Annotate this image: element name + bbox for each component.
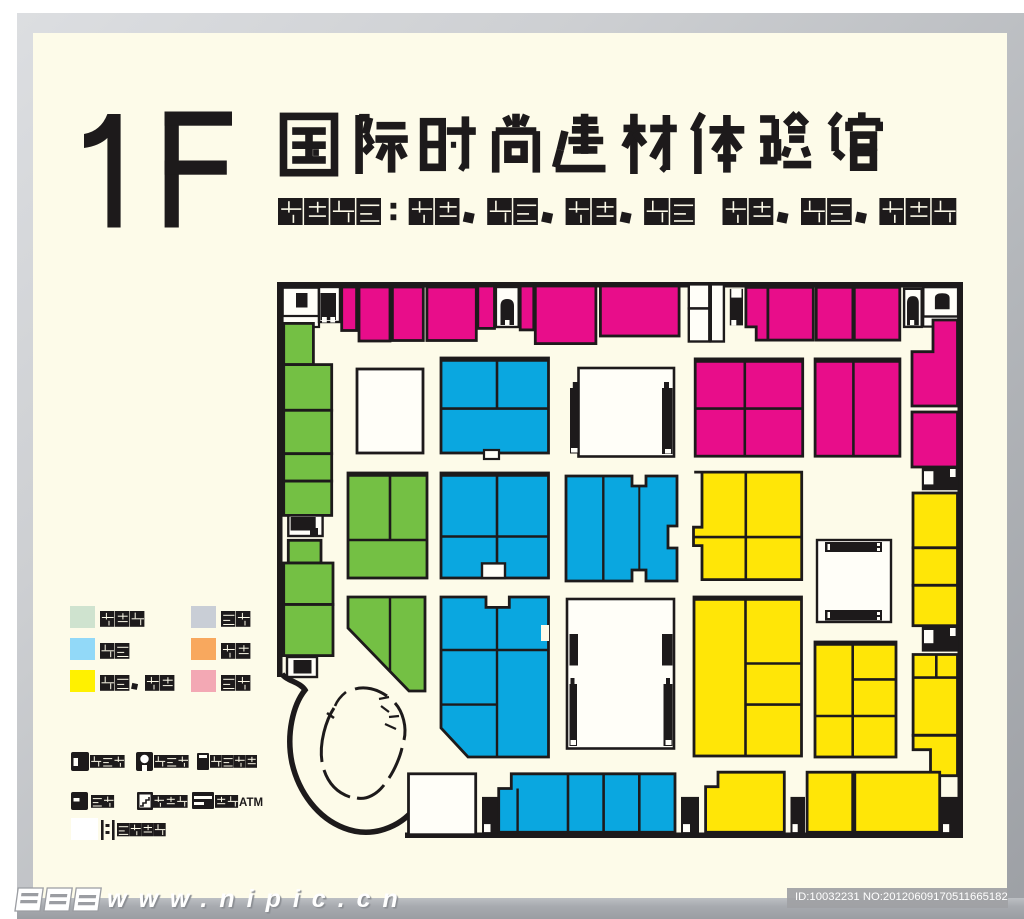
svg-text:ATM: ATM xyxy=(239,797,263,809)
